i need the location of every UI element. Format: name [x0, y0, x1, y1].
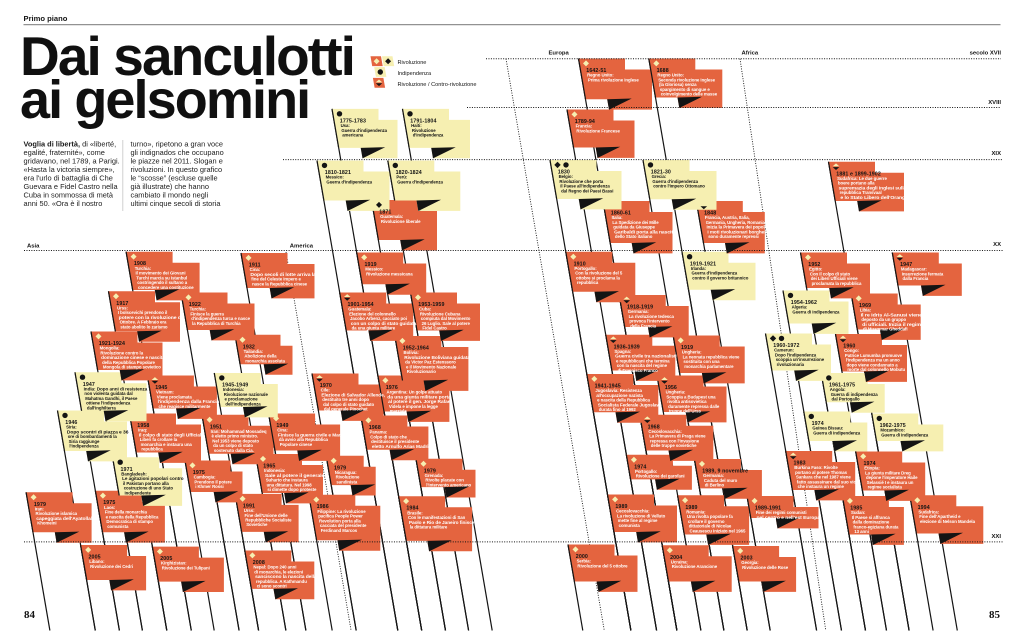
svg-text:Popolare cinese: Popolare cinese	[280, 442, 313, 447]
svg-text:dall'Inghilterra: dall'Inghilterra	[87, 405, 116, 410]
svg-text:Rivoluzione Arancione: Rivoluzione Arancione	[672, 564, 718, 569]
svg-text:elezione di Nelson Mandela: elezione di Nelson Mandela	[920, 519, 976, 524]
svg-text:Indipendenza: Indipendenza	[398, 71, 432, 77]
svg-text:dal generale Pinochet: dal generale Pinochet	[324, 407, 368, 412]
svg-text:Europa: Europa	[549, 51, 570, 57]
svg-text:dal Portogallo: dal Portogallo	[832, 397, 861, 402]
svg-text:XX: XX	[993, 242, 1001, 248]
svg-text:dell'indipendenza: dell'indipendenza	[225, 401, 261, 406]
svg-text:di Francisco Franco: di Francisco Franco	[618, 368, 659, 373]
svg-text:truppe dell'Urss: truppe dell'Urss	[669, 409, 702, 414]
svg-text:coinvolgimento delle masse: coinvolgimento delle masse	[661, 92, 718, 97]
svg-text:Guerra di indipendenza: Guerra di indipendenza	[792, 309, 840, 314]
svg-text:repubblica: repubblica	[577, 280, 599, 285]
svg-text:Rivoluzione: Rivoluzione	[398, 60, 427, 66]
svg-text:indipendente: indipendente	[125, 490, 152, 495]
svg-text:Rivoluzione del 5 ottobre: Rivoluzione del 5 ottobre	[577, 563, 628, 568]
svg-text:dello Stato italiano: dello Stato italiano	[615, 234, 653, 239]
svg-text:Rivoluzione Francese: Rivoluzione Francese	[576, 128, 620, 133]
svg-text:sono duramente repressi: sono duramente repressi	[708, 234, 759, 239]
svg-text:l'intervento americano: l'intervento americano	[426, 482, 471, 487]
svg-text:durata fino al 1992: durata fino al 1992	[599, 407, 637, 412]
svg-text:Rivoluzione dei Cedri: Rivoluzione dei Cedri	[90, 564, 133, 569]
svg-text:contro l'Impero Ottomano: contro l'Impero Ottomano	[653, 184, 705, 189]
svg-text:marziale: marziale	[390, 409, 408, 414]
svg-text:monarchia parlamentare: monarchia parlamentare	[684, 364, 734, 369]
svg-text:stato abolito lo zarismo: stato abolito lo zarismo	[120, 324, 167, 329]
svg-text:che reagisce militarmente: che reagisce militarmente	[159, 404, 212, 409]
svg-text:contro il governo britannico: contro il governo britannico	[692, 275, 748, 280]
svg-text:Asia: Asia	[27, 244, 40, 250]
svg-text:d'indipendenza: d'indipendenza	[413, 133, 444, 138]
svg-text:Guerra d'indipendenza: Guerra d'indipendenza	[397, 179, 443, 184]
svg-text:i Khmer Rossi: i Khmer Rossi	[195, 484, 223, 489]
svg-text:monarchia assoluta: monarchia assoluta	[245, 358, 285, 363]
svg-text:Guerra di indipendenza: Guerra di indipendenza	[813, 430, 861, 435]
svg-text:Rivoluzionario: Rivoluzionario	[407, 369, 436, 374]
svg-text:XIX: XIX	[992, 151, 1002, 157]
svg-text:Guerra di indipendenza: Guerra di indipendenza	[881, 432, 929, 437]
svg-text:Sovietiche: Sovietiche	[246, 522, 268, 527]
svg-text:America: America	[290, 244, 314, 250]
svg-text:la dittatura militare: la dittatura militare	[410, 525, 448, 530]
svg-text:della Francia: della Francia	[630, 323, 656, 328]
svg-text:ci sono scontri: ci sono scontri	[257, 584, 287, 589]
svg-text:Ferdinand Marcos: Ferdinand Marcos	[321, 528, 358, 533]
svg-text:nel centro e nell'est Europa: nel centro e nell'est Europa	[757, 515, 821, 520]
svg-text:XVIII: XVIII	[988, 100, 1001, 106]
svg-text:Fidel Castro: Fidel Castro	[422, 326, 447, 331]
svg-text:di Muammar Gheddafi: di Muammar Gheddafi	[863, 327, 907, 332]
svg-text:dalla Francia: dalla Francia	[903, 276, 929, 281]
svg-text:Rivoluzione delle Rose: Rivoluzione delle Rose	[742, 565, 789, 570]
svg-text:Rivoluzione / Contro-rivoluzio: Rivoluzione / Contro-rivoluzione	[398, 82, 477, 88]
svg-text:Guerra d'indipendenza: Guerra d'indipendenza	[326, 179, 372, 184]
svg-text:l'indipendenza: l'indipendenza	[69, 444, 99, 449]
svg-text:morte dal colonnello Mobutu: morte dal colonnello Mobutu	[847, 367, 905, 372]
svg-text:la Repubblica di Turchia: la Repubblica di Turchia	[192, 321, 241, 326]
svg-text:ai gelsomini: ai gelsomini	[20, 70, 309, 130]
svg-text:Rivoluzione dei Tulipani: Rivoluzione dei Tulipani	[162, 566, 210, 571]
svg-text:delle truppe sovietiche: delle truppe sovietiche	[651, 443, 697, 448]
svg-text:comunista: comunista	[619, 523, 641, 528]
svg-text:eletto Arnulfo Arias Madrid: eletto Arnulfo Arias Madrid	[372, 444, 432, 449]
svg-text:repubblica: repubblica	[141, 447, 163, 452]
svg-text:Primo piano: Primo piano	[24, 14, 68, 23]
svg-text:di Berlino: di Berlino	[705, 483, 725, 488]
svg-text:Ceausescu iniziato nel 1965: Ceausescu iniziato nel 1965	[690, 528, 746, 533]
svg-text:sandinista: sandinista	[336, 479, 358, 484]
svg-text:Rivoluzione liberale: Rivoluzione liberale	[381, 219, 421, 224]
svg-text:americana: americana	[342, 133, 364, 138]
svg-text:Rivoluzione messicana: Rivoluzione messicana	[366, 271, 413, 276]
svg-text:anni 50. «Ora è il nostro: anni 50. «Ora è il nostro	[24, 199, 103, 208]
svg-text:da una giunta militare: da una giunta militare	[352, 326, 396, 331]
svg-text:nasce la Repubblica cinese: nasce la Repubblica cinese	[252, 281, 308, 286]
svg-text:Rivoluzione dei garofani: Rivoluzione dei garofani	[636, 474, 685, 479]
svg-text:dal Regno dei Paesi Bassi: dal Regno dei Paesi Bassi	[561, 188, 613, 193]
svg-text:Khomeini: Khomeini	[37, 521, 56, 526]
svg-text:85: 85	[989, 609, 1001, 621]
svg-text:concedere una costituzione: concedere una costituzione	[138, 285, 194, 290]
svg-text:secolo XVII: secolo XVII	[970, 51, 1002, 57]
svg-text:regime socialista: regime socialista	[868, 485, 903, 490]
svg-text:Prima rivoluzione inglese: Prima rivoluzione inglese	[588, 77, 640, 82]
svg-text:rivoluzionaria: rivoluzionaria	[777, 362, 805, 367]
svg-text:comunista: comunista	[107, 524, 129, 529]
svg-text:ultimi cinque secoli di storia: ultimi cinque secoli di storia	[131, 199, 222, 208]
svg-text:si dimette dopo proteste: si dimette dopo proteste	[267, 487, 317, 492]
svg-text:Mongola di stampo sovietico: Mongola di stampo sovietico	[103, 365, 161, 370]
svg-text:proclamata la repubblica: proclamata la repubblica	[812, 281, 862, 286]
svg-text:e lo Stato Libero dell'Orange: e lo Stato Libero dell'Orange	[840, 195, 908, 200]
svg-text:che instaura un regime: che instaura un regime	[798, 484, 845, 489]
svg-text:13 anni: 13 anni	[854, 529, 869, 534]
svg-text:sostenuto dalla Cia.: sostenuto dalla Cia.	[214, 448, 254, 453]
svg-text:Africa: Africa	[742, 51, 759, 57]
svg-text:XXI: XXI	[992, 534, 1002, 540]
svg-text:84: 84	[24, 609, 36, 621]
